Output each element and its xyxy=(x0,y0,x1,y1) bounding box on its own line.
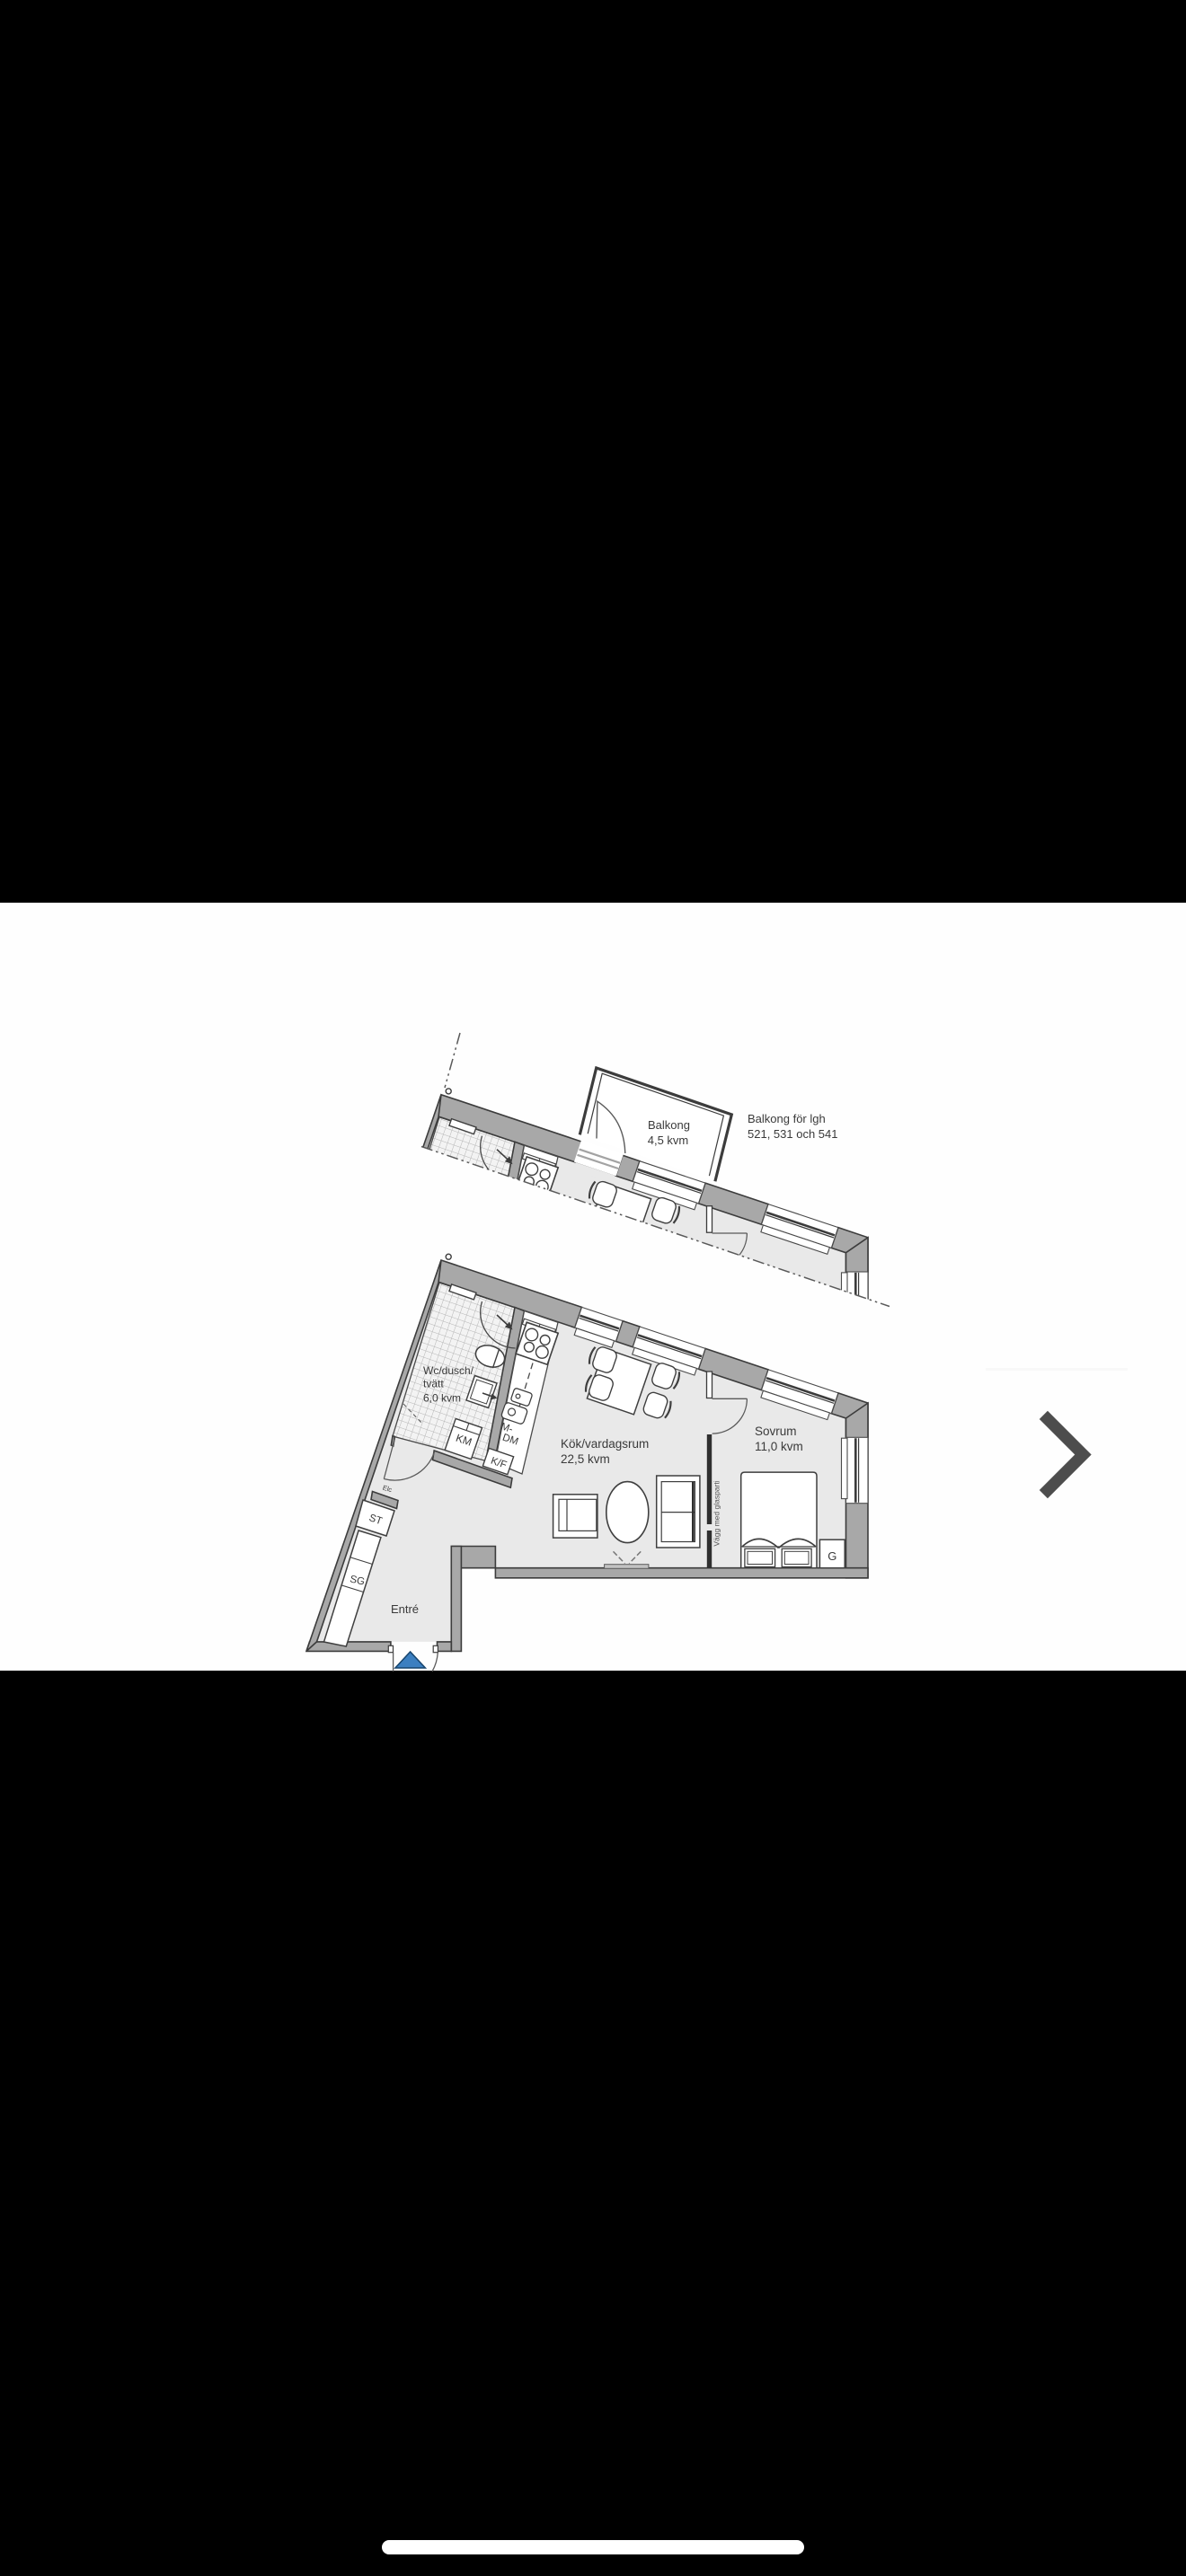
svg-text:Vägg med glasparti: Vägg med glasparti xyxy=(712,1480,721,1546)
svg-text:Entré: Entré xyxy=(391,1602,419,1616)
svg-text:6,0 kvm: 6,0 kvm xyxy=(423,1392,461,1405)
svg-text:Sovrum: Sovrum xyxy=(755,1425,797,1438)
svg-text:Balkong: Balkong xyxy=(648,1118,690,1132)
svg-text:11,0 kvm: 11,0 kvm xyxy=(755,1440,803,1453)
svg-text:4,5 kvm: 4,5 kvm xyxy=(648,1134,689,1147)
svg-text:521, 531 och 541: 521, 531 och 541 xyxy=(748,1127,837,1141)
svg-text:G: G xyxy=(828,1549,836,1563)
svg-text:Balkong för lgh: Balkong för lgh xyxy=(748,1112,826,1125)
svg-text:tvätt: tvätt xyxy=(423,1378,444,1390)
svg-text:22,5 kvm: 22,5 kvm xyxy=(561,1452,610,1466)
svg-text:Kök/vardagsrum: Kök/vardagsrum xyxy=(561,1437,649,1451)
svg-text:Wc/dusch/: Wc/dusch/ xyxy=(423,1364,474,1377)
